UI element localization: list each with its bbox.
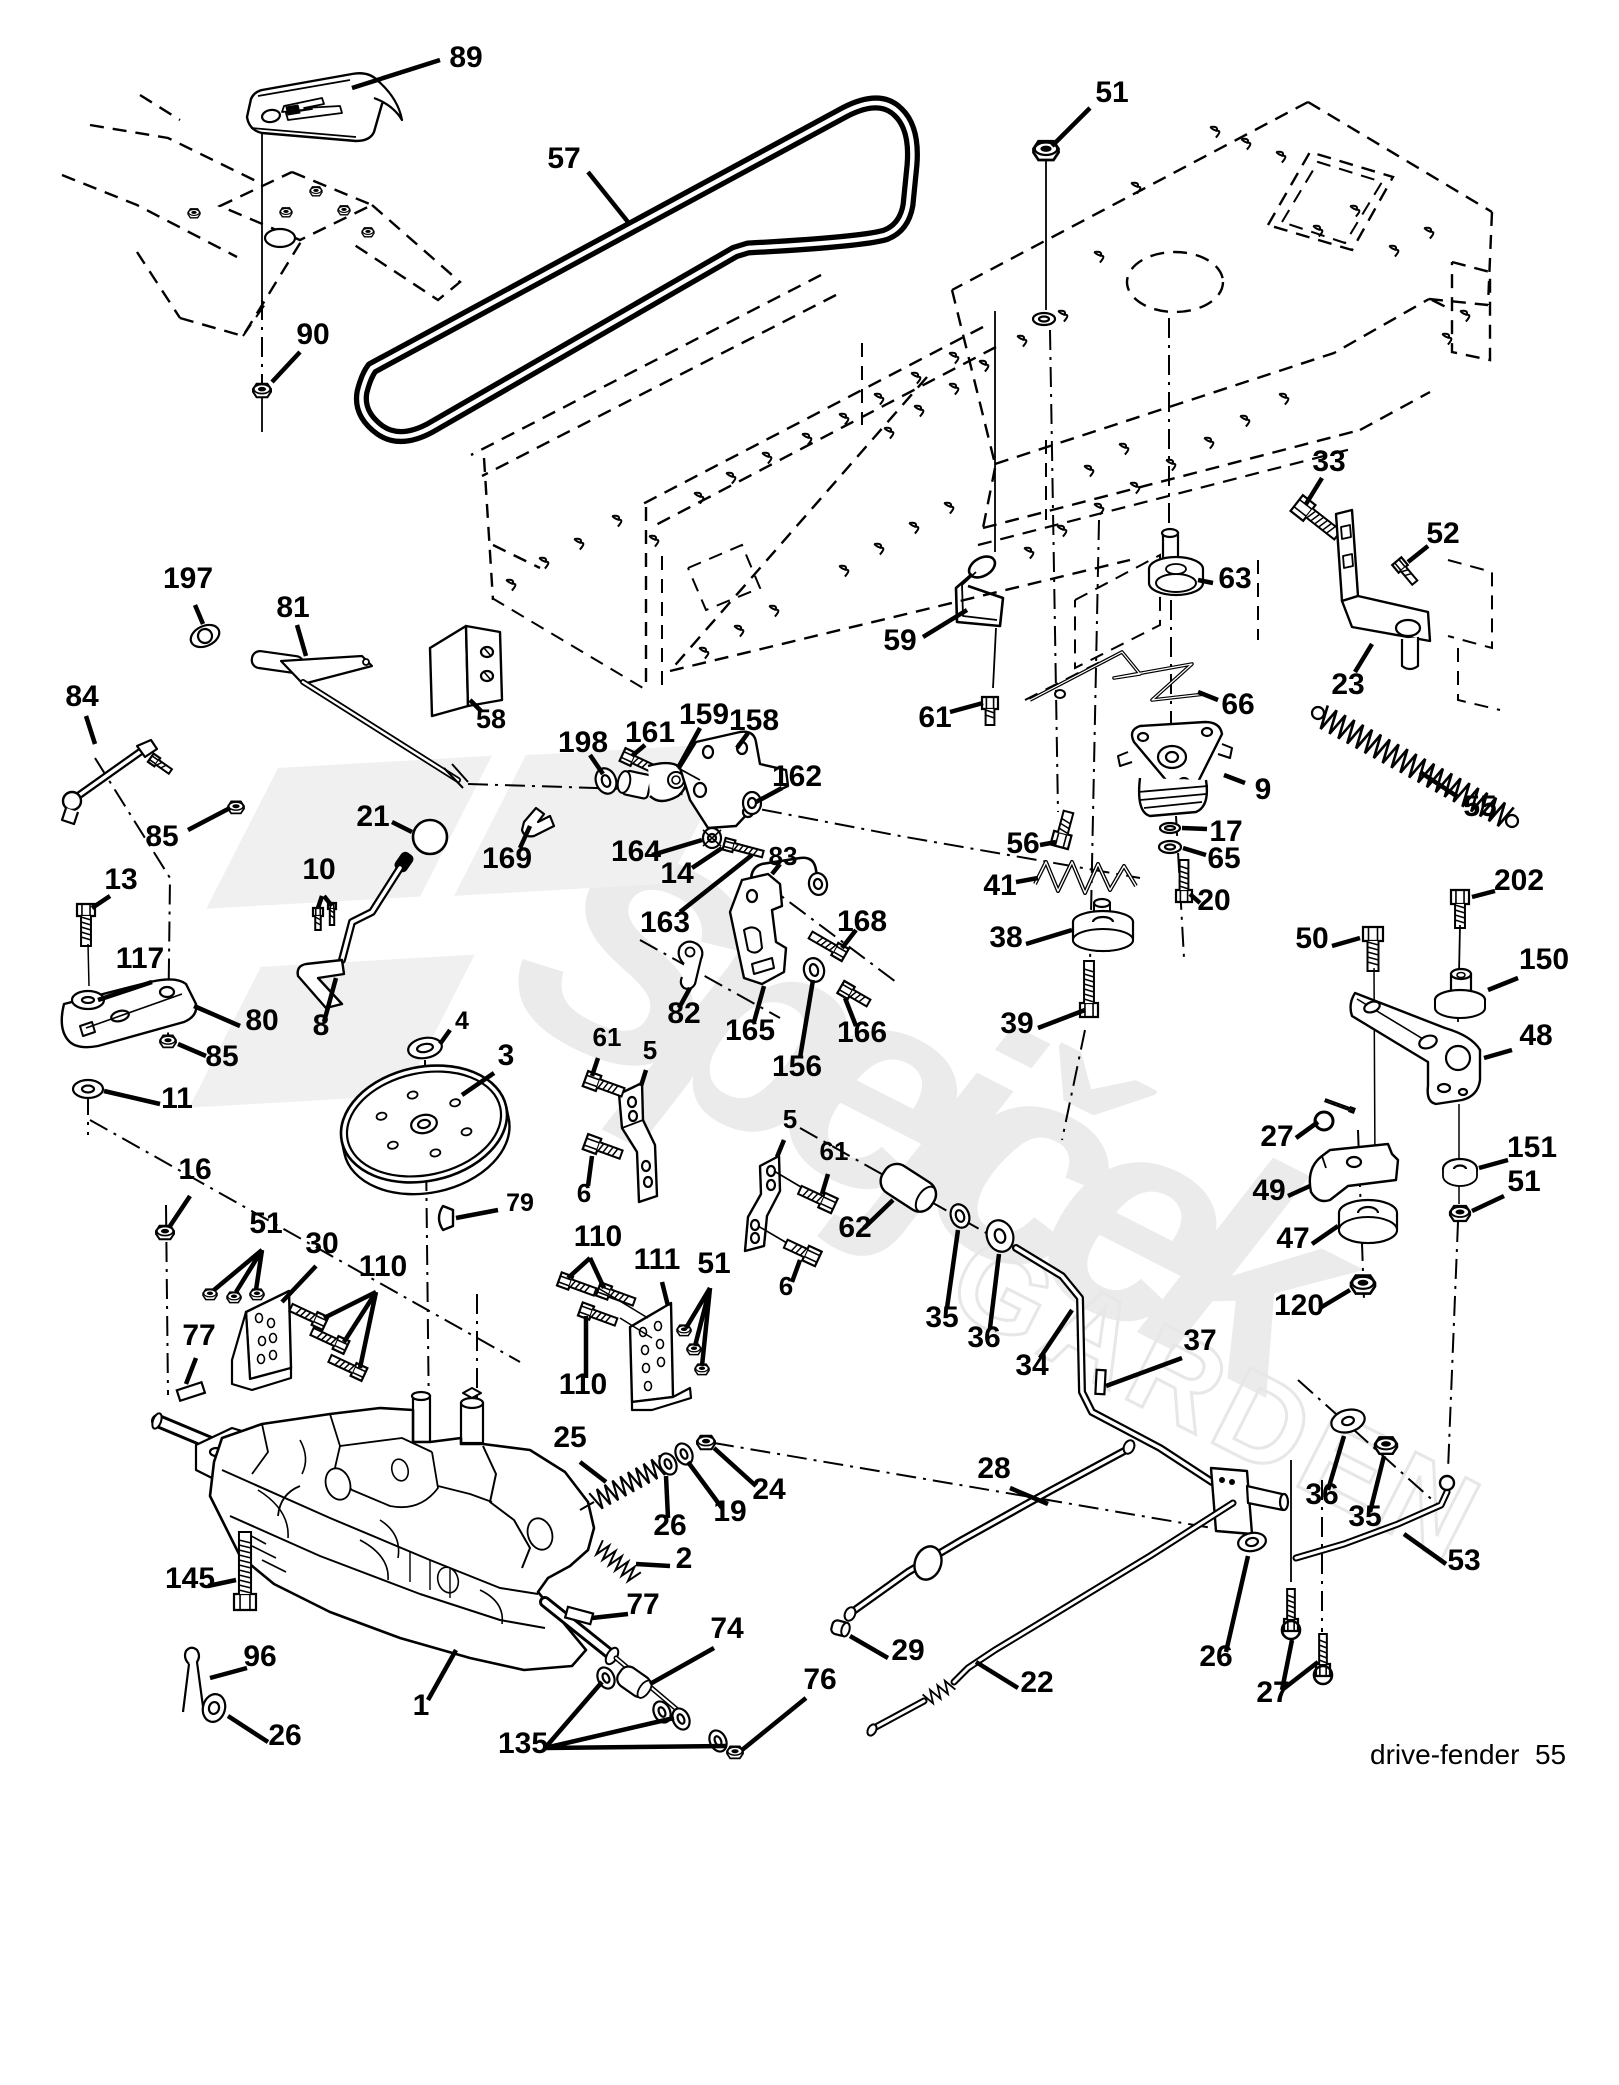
svg-text:26: 26 [268,1719,301,1752]
svg-text:35: 35 [1348,1500,1381,1533]
svg-text:198: 198 [558,726,608,759]
svg-text:74: 74 [710,1612,744,1645]
svg-text:77: 77 [182,1319,215,1352]
svg-text:61: 61 [593,1022,622,1052]
svg-text:20: 20 [1197,884,1230,917]
svg-text:48: 48 [1519,1019,1552,1052]
svg-text:6: 6 [779,1271,793,1301]
svg-text:47: 47 [1276,1222,1309,1255]
svg-text:84: 84 [65,680,99,713]
svg-text:51: 51 [697,1247,730,1280]
svg-text:56: 56 [1006,827,1039,860]
svg-text:150: 150 [1519,943,1569,976]
svg-text:83: 83 [769,841,798,871]
svg-text:61: 61 [918,701,951,734]
svg-text:22: 22 [1020,1666,1053,1699]
svg-text:90: 90 [296,318,329,351]
svg-text:65: 65 [1207,842,1240,875]
svg-text:202: 202 [1494,864,1544,897]
svg-text:5: 5 [643,1035,657,1065]
svg-text:165: 165 [725,1014,775,1047]
svg-text:25: 25 [553,1421,586,1454]
svg-text:2: 2 [676,1542,693,1575]
svg-text:166: 166 [837,1016,887,1049]
svg-text:21: 21 [356,800,389,833]
svg-text:197: 197 [163,562,213,595]
svg-text:4: 4 [455,1007,469,1035]
svg-text:79: 79 [506,1189,534,1217]
svg-text:24: 24 [752,1473,786,1506]
svg-text:38: 38 [989,921,1022,954]
svg-text:51: 51 [249,1207,282,1240]
svg-text:53: 53 [1447,1544,1480,1577]
svg-text:50: 50 [1295,922,1328,955]
svg-text:51: 51 [1507,1165,1540,1198]
svg-text:35: 35 [925,1301,958,1334]
svg-text:169: 169 [482,842,532,875]
svg-text:11: 11 [161,1082,193,1115]
svg-text:57: 57 [547,142,580,175]
svg-text:89: 89 [449,41,482,74]
svg-text:164: 164 [611,835,661,868]
svg-text:10: 10 [302,853,335,886]
svg-text:23: 23 [1331,668,1364,701]
svg-text:117: 117 [116,942,164,975]
svg-text:77: 77 [626,1588,659,1621]
svg-text:14: 14 [660,857,694,890]
svg-text:30: 30 [305,1227,338,1260]
svg-text:85: 85 [205,1040,238,1073]
svg-text:3: 3 [498,1039,515,1072]
svg-text:41: 41 [983,869,1016,902]
svg-text:76: 76 [803,1663,836,1696]
svg-text:39: 39 [1000,1007,1033,1040]
svg-text:29: 29 [891,1634,924,1667]
svg-text:145: 145 [165,1562,215,1595]
svg-text:135: 135 [498,1727,548,1760]
svg-text:13: 13 [104,863,137,896]
svg-text:9: 9 [1255,773,1272,806]
svg-text:110: 110 [574,1220,622,1253]
svg-text:51: 51 [1095,76,1128,109]
svg-text:36: 36 [1305,1478,1338,1511]
svg-text:110: 110 [559,1368,607,1401]
svg-text:80: 80 [245,1004,278,1037]
svg-text:156: 156 [772,1050,822,1083]
svg-text:28: 28 [977,1452,1010,1485]
svg-text:168: 168 [837,905,887,938]
svg-text:161: 161 [625,716,675,749]
svg-text:37: 37 [1183,1324,1216,1357]
svg-text:27: 27 [1260,1120,1293,1153]
svg-text:85: 85 [145,820,178,853]
svg-text:33: 33 [1312,445,1345,478]
svg-text:5: 5 [783,1104,797,1134]
svg-text:96: 96 [243,1640,276,1673]
svg-text:61: 61 [820,1136,849,1166]
svg-text:16: 16 [178,1153,211,1186]
svg-text:111: 111 [634,1243,681,1276]
svg-text:36: 36 [967,1321,1000,1354]
svg-text:55: 55 [1463,790,1496,823]
svg-text:66: 66 [1221,688,1254,721]
svg-text:1: 1 [413,1689,430,1722]
svg-text:110: 110 [359,1250,407,1283]
svg-text:158: 158 [729,704,779,737]
svg-text:52: 52 [1426,517,1459,550]
svg-text:120: 120 [1274,1289,1324,1322]
svg-text:151: 151 [1507,1131,1557,1164]
svg-text:159: 159 [679,698,729,731]
svg-text:81: 81 [276,591,309,624]
svg-text:drive-fender 55: drive-fender 55 [1370,1739,1566,1770]
svg-text:59: 59 [883,624,916,657]
svg-text:49: 49 [1252,1174,1285,1207]
svg-text:63: 63 [1218,562,1251,595]
